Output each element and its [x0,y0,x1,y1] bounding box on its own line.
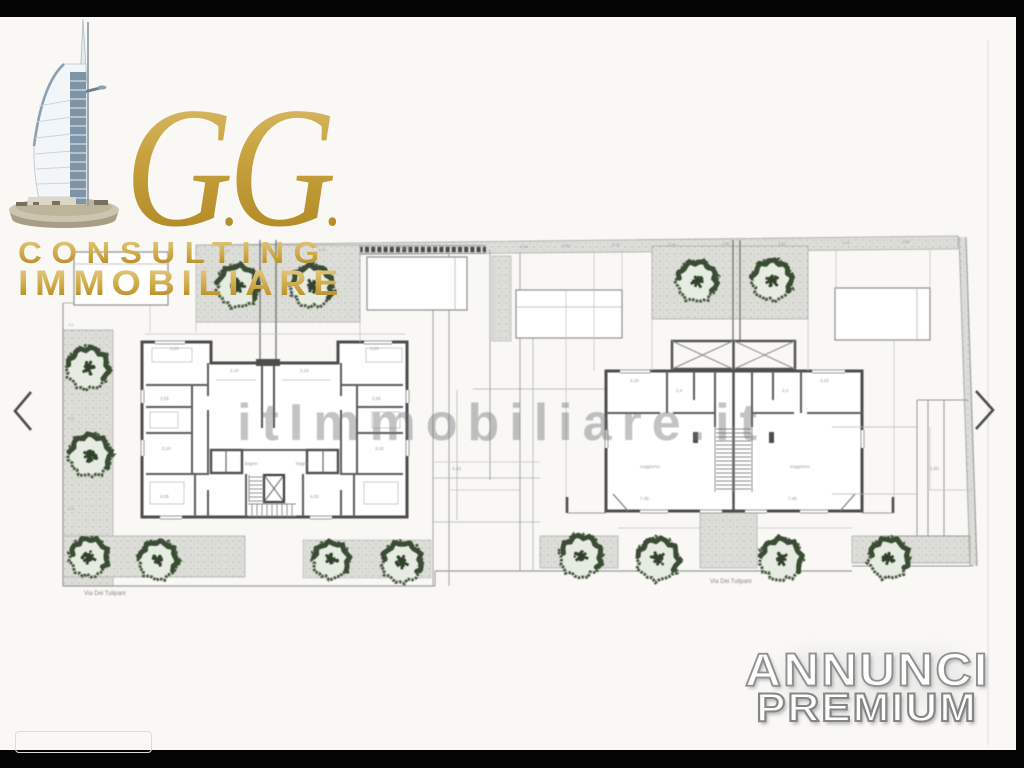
svg-text:3,10: 3,10 [162,446,171,451]
svg-text:soggiorno: soggiorno [640,464,660,469]
svg-text:1,50: 1,50 [930,466,939,471]
svg-text:2,10: 2,10 [300,368,309,373]
svg-text:3,20: 3,20 [668,242,677,247]
svg-text:4,10: 4,10 [630,378,639,383]
svg-text:2,10: 2,10 [230,368,239,373]
svg-text:1,2: 1,2 [68,322,74,327]
svg-text:4,15: 4,15 [842,240,851,245]
svg-text:7,45: 7,45 [640,496,649,501]
svg-text:2,90: 2,90 [722,241,731,246]
svg-text:3,50: 3,50 [520,244,529,249]
svg-text:4,15: 4,15 [612,242,621,247]
svg-text:itImmobiliare.it: itImmobiliare.it [237,394,767,452]
svg-text:4,10: 4,10 [820,378,829,383]
svg-text:bagno: bagno [296,461,309,466]
svg-text:4,05: 4,05 [310,494,319,499]
svg-text:4,43: 4,43 [452,466,461,471]
svg-text:4,20: 4,20 [170,346,179,351]
svg-text:bagno: bagno [245,461,258,466]
svg-text:3,5: 3,5 [68,416,74,421]
svg-text:4,05: 4,05 [160,494,169,499]
svg-text:3,55: 3,55 [160,396,169,401]
svg-text:2,80: 2,80 [562,243,571,248]
svg-text:3,5: 3,5 [68,506,74,511]
svg-text:2,4: 2,4 [676,388,683,393]
svg-text:2,4: 2,4 [782,388,789,393]
svg-text:soggiorno: soggiorno [790,464,810,469]
svg-text:3,80: 3,80 [902,239,911,244]
svg-text:3,20: 3,20 [778,241,787,246]
svg-text:Via Dei Tulipani: Via Dei Tulipani [710,579,752,585]
svg-text:4,20: 4,20 [370,346,379,351]
svg-text:Via Dei Tulipani: Via Dei Tulipani [84,591,126,597]
svg-text:7,45: 7,45 [788,496,797,501]
